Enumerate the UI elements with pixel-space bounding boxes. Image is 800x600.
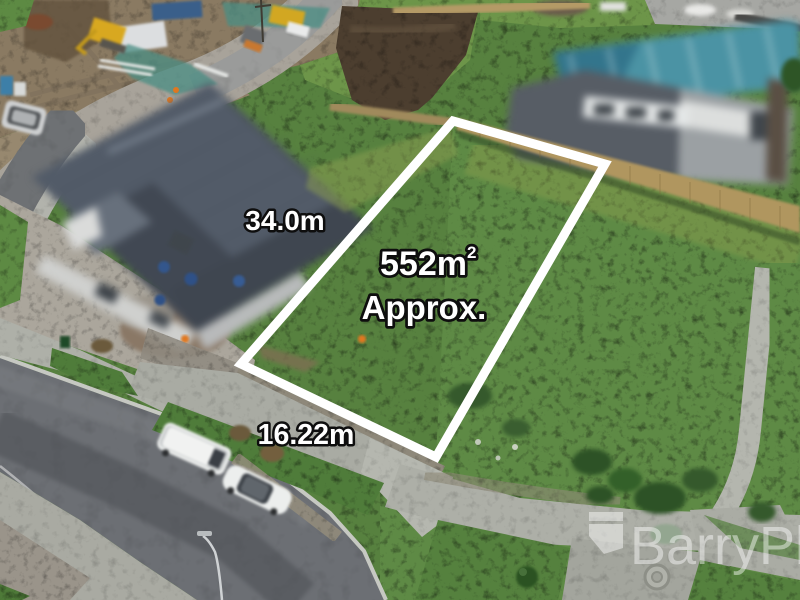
svg-text:Approx.: Approx. bbox=[362, 289, 487, 326]
svg-text:16.22m: 16.22m bbox=[258, 419, 355, 451]
svg-text:34.0m: 34.0m bbox=[245, 205, 324, 236]
svg-text:552m2: 552m2 bbox=[380, 243, 476, 283]
svg-text:BarryPla: BarryPla bbox=[630, 516, 800, 576]
